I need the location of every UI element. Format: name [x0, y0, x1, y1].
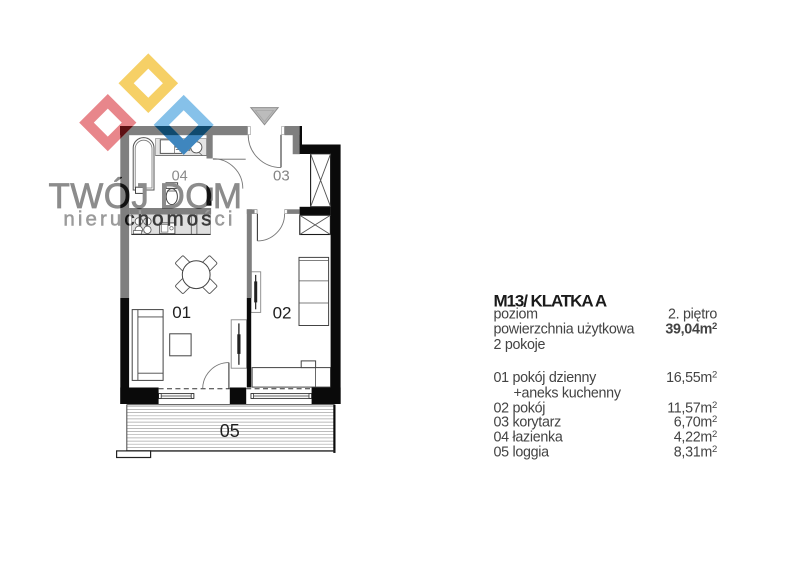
- svg-text:6,70m2: 6,70m2: [674, 414, 717, 431]
- svg-text:16,55m2: 16,55m2: [666, 370, 717, 387]
- svg-text:8,31m2: 8,31m2: [674, 444, 717, 461]
- svg-text:05 loggia: 05 loggia: [494, 444, 550, 460]
- svg-text:03 korytarz: 03 korytarz: [494, 414, 562, 430]
- svg-text:2. piętro: 2. piętro: [668, 307, 717, 323]
- svg-text:03: 03: [273, 168, 290, 185]
- svg-text:01: 01: [172, 303, 191, 322]
- svg-text:39,04m2: 39,04m2: [665, 321, 717, 338]
- svg-text:05: 05: [220, 421, 240, 441]
- svg-text:+aneks kuchenny: +aneks kuchenny: [514, 385, 622, 401]
- svg-text:01 pokój dzienny: 01 pokój dzienny: [494, 370, 598, 386]
- svg-text:4,22m2: 4,22m2: [674, 429, 717, 446]
- svg-text:2 pokoje: 2 pokoje: [494, 337, 546, 353]
- svg-text:04 łazienka: 04 łazienka: [494, 430, 563, 446]
- svg-text:02: 02: [273, 303, 292, 322]
- svg-text:poziom: poziom: [494, 307, 538, 323]
- svg-text:powierzchnia użytkowa: powierzchnia użytkowa: [494, 322, 635, 338]
